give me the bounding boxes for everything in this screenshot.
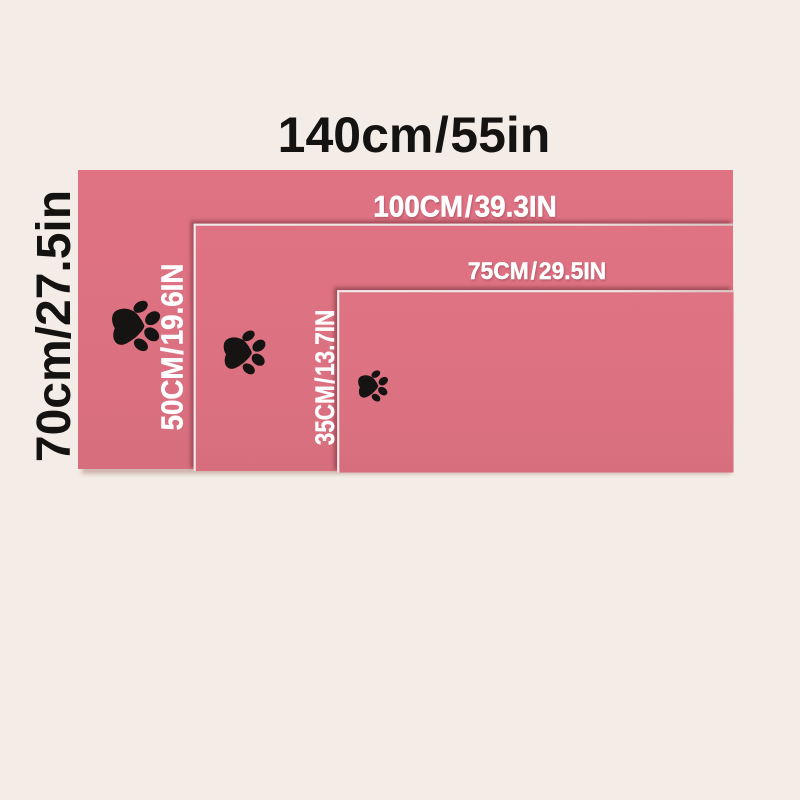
svg-text:70cm/27.5in: 70cm/27.5in: [28, 190, 81, 462]
svg-text:35CM/13.7IN: 35CM/13.7IN: [311, 310, 340, 445]
svg-text:100CM/39.3IN: 100CM/39.3IN: [373, 191, 557, 224]
svg-text:140cm/55in: 140cm/55in: [278, 107, 551, 163]
